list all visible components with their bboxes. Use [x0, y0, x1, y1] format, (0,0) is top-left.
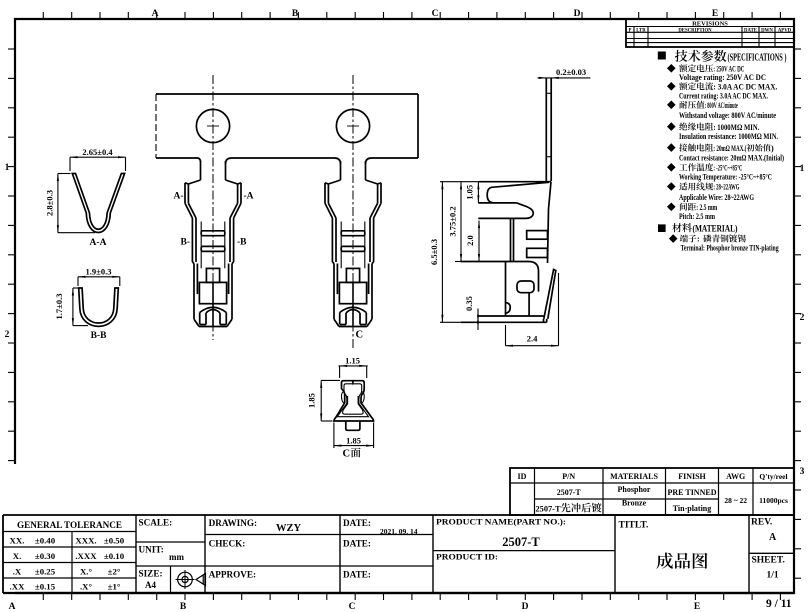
svg-text:Phosphor: Phosphor [618, 485, 651, 494]
svg-text:A: A [9, 602, 16, 612]
svg-text:0.2±0.03: 0.2±0.03 [556, 67, 586, 77]
svg-text:(SPECIFICATIONS ): (SPECIFICATIONS ) [728, 51, 787, 63]
svg-text:DATE:: DATE: [343, 570, 371, 580]
svg-text:±0.15: ±0.15 [35, 581, 56, 591]
svg-text:±0.30: ±0.30 [35, 551, 56, 561]
svg-text:Q'ty/reel: Q'ty/reel [759, 472, 787, 481]
svg-text:C: C [432, 9, 439, 19]
svg-text:APPROVE:: APPROVE: [209, 570, 256, 580]
svg-text:B-: B- [181, 237, 191, 247]
svg-text:2021. 09. 14: 2021. 09. 14 [380, 527, 418, 536]
svg-text:A-: A- [173, 191, 183, 201]
svg-text:2.65±0.4: 2.65±0.4 [82, 147, 113, 157]
svg-text:PRODUCT NAME(PART NO.):: PRODUCT NAME(PART NO.): [436, 517, 566, 527]
svg-text:2: 2 [5, 330, 10, 340]
svg-text:C: C [343, 449, 351, 460]
svg-text:: -25°C~+85°C: : -25°C~+85°C [713, 164, 742, 173]
svg-text:MATERIALS: MATERIALS [610, 472, 658, 481]
svg-text:2.8±0.3: 2.8±0.3 [45, 190, 55, 216]
svg-text:Tin-plating: Tin-plating [673, 504, 712, 513]
svg-text:1.85: 1.85 [346, 436, 361, 446]
svg-text:1.05: 1.05 [465, 185, 475, 200]
svg-text:XX.: XX. [10, 535, 25, 545]
svg-text:mm: mm [169, 552, 184, 562]
svg-text:-A: -A [244, 191, 254, 201]
svg-text:2.4: 2.4 [527, 334, 538, 344]
svg-text:Voltage rating: 250V AC DC: Voltage rating: 250V AC DC [679, 73, 766, 82]
svg-text:LTR: LTR [636, 28, 646, 33]
svg-text:PRODUCT ID:: PRODUCT ID: [436, 552, 498, 562]
svg-text:2507-T: 2507-T [536, 505, 562, 514]
svg-text:B: B [180, 602, 187, 612]
svg-text:(MATERIAL): (MATERIAL) [693, 223, 738, 234]
svg-text:1.85: 1.85 [307, 393, 317, 408]
svg-text:-B: -B [237, 237, 247, 247]
svg-text:Contact resistance: 20mΩ MAX.: Contact resistance: 20mΩ MAX.(Initial) [679, 153, 784, 162]
svg-text:Pitch: 2.5 mm: Pitch: 2.5 mm [679, 212, 715, 221]
svg-text:.XX: .XX [10, 581, 26, 591]
svg-text:B-B: B-B [91, 331, 108, 341]
svg-text:D: D [522, 602, 529, 612]
svg-text:.X°: .X° [80, 581, 93, 591]
svg-text:: 2.5 mm: : 2.5 mm [696, 203, 717, 212]
svg-text:SIZE:: SIZE: [139, 569, 163, 579]
svg-text:Applicable Wire: 28~22AWG: Applicable Wire: 28~22AWG [679, 193, 754, 202]
svg-text:11000pcs: 11000pcs [759, 496, 788, 505]
svg-text:P/N: P/N [562, 472, 575, 481]
svg-text:D: D [574, 9, 581, 19]
svg-text:C: C [349, 602, 356, 612]
svg-text:CHECK:: CHECK: [209, 539, 246, 549]
svg-text:.XXX: .XXX [75, 551, 97, 561]
svg-text:Working Temperature: -25°C~+85: Working Temperature: -25°C~+85°C [679, 173, 772, 182]
svg-text:Terminal: Phosphor bronze TIN-: Terminal: Phosphor bronze TIN-plating [681, 244, 780, 253]
svg-text:: 20mΩ MAX.(: : 20mΩ MAX.( [713, 144, 746, 153]
svg-text:DESCRIPTION: DESCRIPTION [678, 28, 712, 33]
svg-text:3.75±0.2: 3.75±0.2 [448, 206, 458, 236]
svg-text:WZY: WZY [276, 523, 302, 534]
svg-text:P: P [629, 28, 632, 33]
svg-text:2.0: 2.0 [465, 235, 475, 246]
svg-text:C: C [356, 330, 364, 341]
svg-text:1.15: 1.15 [345, 356, 360, 366]
svg-text:E: E [694, 602, 700, 612]
svg-text:±0.25: ±0.25 [35, 566, 56, 576]
svg-text:: 1000MΩ MIN.: : 1000MΩ MIN. [713, 123, 759, 132]
svg-text:B: B [292, 9, 299, 19]
svg-text:±0.40: ±0.40 [35, 535, 56, 545]
svg-text:6.5±0.3: 6.5±0.3 [429, 239, 439, 265]
svg-text:: 800V AC/minute: : 800V AC/minute [705, 101, 738, 110]
svg-text:A: A [152, 9, 159, 19]
svg-text:: 28~22AWG: : 28~22AWG [713, 183, 739, 192]
svg-text:2: 2 [800, 313, 805, 323]
svg-text:.X: .X [13, 566, 22, 576]
svg-text:A: A [769, 532, 777, 543]
svg-text:2507-T: 2507-T [502, 535, 540, 549]
svg-text:REV.: REV. [751, 518, 772, 528]
svg-text:Bronze: Bronze [622, 499, 647, 508]
svg-text:A4: A4 [145, 580, 156, 590]
svg-text:X.: X. [13, 551, 22, 561]
svg-text:DATE:: DATE: [343, 539, 371, 549]
svg-text:X.°: X.° [80, 566, 93, 576]
svg-text:XXX.: XXX. [75, 535, 96, 545]
svg-text:DATE: DATE [744, 28, 757, 33]
svg-text:0.35: 0.35 [464, 296, 474, 311]
svg-text:SHEET.: SHEET. [752, 556, 785, 566]
svg-text:FINISH: FINISH [678, 472, 706, 481]
svg-text:REVISIONS: REVISIONS [692, 20, 728, 27]
svg-text:28 ~ 22: 28 ~ 22 [724, 496, 747, 505]
svg-text:SCALE:: SCALE: [139, 518, 173, 528]
svg-text:): ) [771, 144, 774, 153]
svg-text:APVD: APVD [778, 28, 792, 33]
svg-text:1: 1 [5, 163, 10, 173]
svg-text:Withstand voltage: 800V AC/min: Withstand voltage: 800V AC/minute [679, 111, 776, 120]
svg-text:: 3.0A AC DC MAX.: : 3.0A AC DC MAX. [713, 83, 777, 92]
svg-text:3: 3 [800, 467, 805, 477]
svg-text:1.7±0.3: 1.7±0.3 [54, 294, 64, 320]
svg-text:±0.10: ±0.10 [104, 551, 125, 561]
svg-text:AWG: AWG [726, 472, 745, 481]
svg-text:±1°: ±1° [108, 581, 121, 591]
svg-text:1/1: 1/1 [767, 571, 779, 581]
svg-text:A-A: A-A [90, 238, 107, 248]
svg-text:2507-T: 2507-T [557, 488, 582, 497]
svg-text:±0.50: ±0.50 [104, 535, 125, 545]
svg-text:GENERAL TOLERANCE: GENERAL TOLERANCE [17, 520, 122, 530]
svg-text:1.9±0.3: 1.9±0.3 [86, 267, 112, 277]
svg-text:ID: ID [518, 472, 527, 481]
svg-text:Current rating: 3.0A AC DC M: Current rating: 3.0A AC DC MAX. [679, 92, 768, 101]
svg-text:PRE TINNED: PRE TINNED [668, 488, 717, 497]
svg-text:±2°: ±2° [108, 566, 121, 576]
svg-text:TITLT.: TITLT. [619, 521, 649, 531]
svg-text:9 / 11: 9 / 11 [766, 598, 792, 610]
svg-text:E: E [712, 9, 718, 19]
svg-text:DRAWING:: DRAWING: [209, 518, 258, 528]
svg-text:Insulation resistance: 1000MΩ: Insulation resistance: 1000MΩ MIN. [679, 132, 778, 141]
svg-text:1: 1 [800, 164, 805, 174]
svg-text:UNIT:: UNIT: [139, 545, 164, 555]
svg-text::: : [697, 235, 700, 244]
svg-text:DATE:: DATE: [343, 518, 371, 528]
svg-text:DWN: DWN [761, 28, 773, 33]
